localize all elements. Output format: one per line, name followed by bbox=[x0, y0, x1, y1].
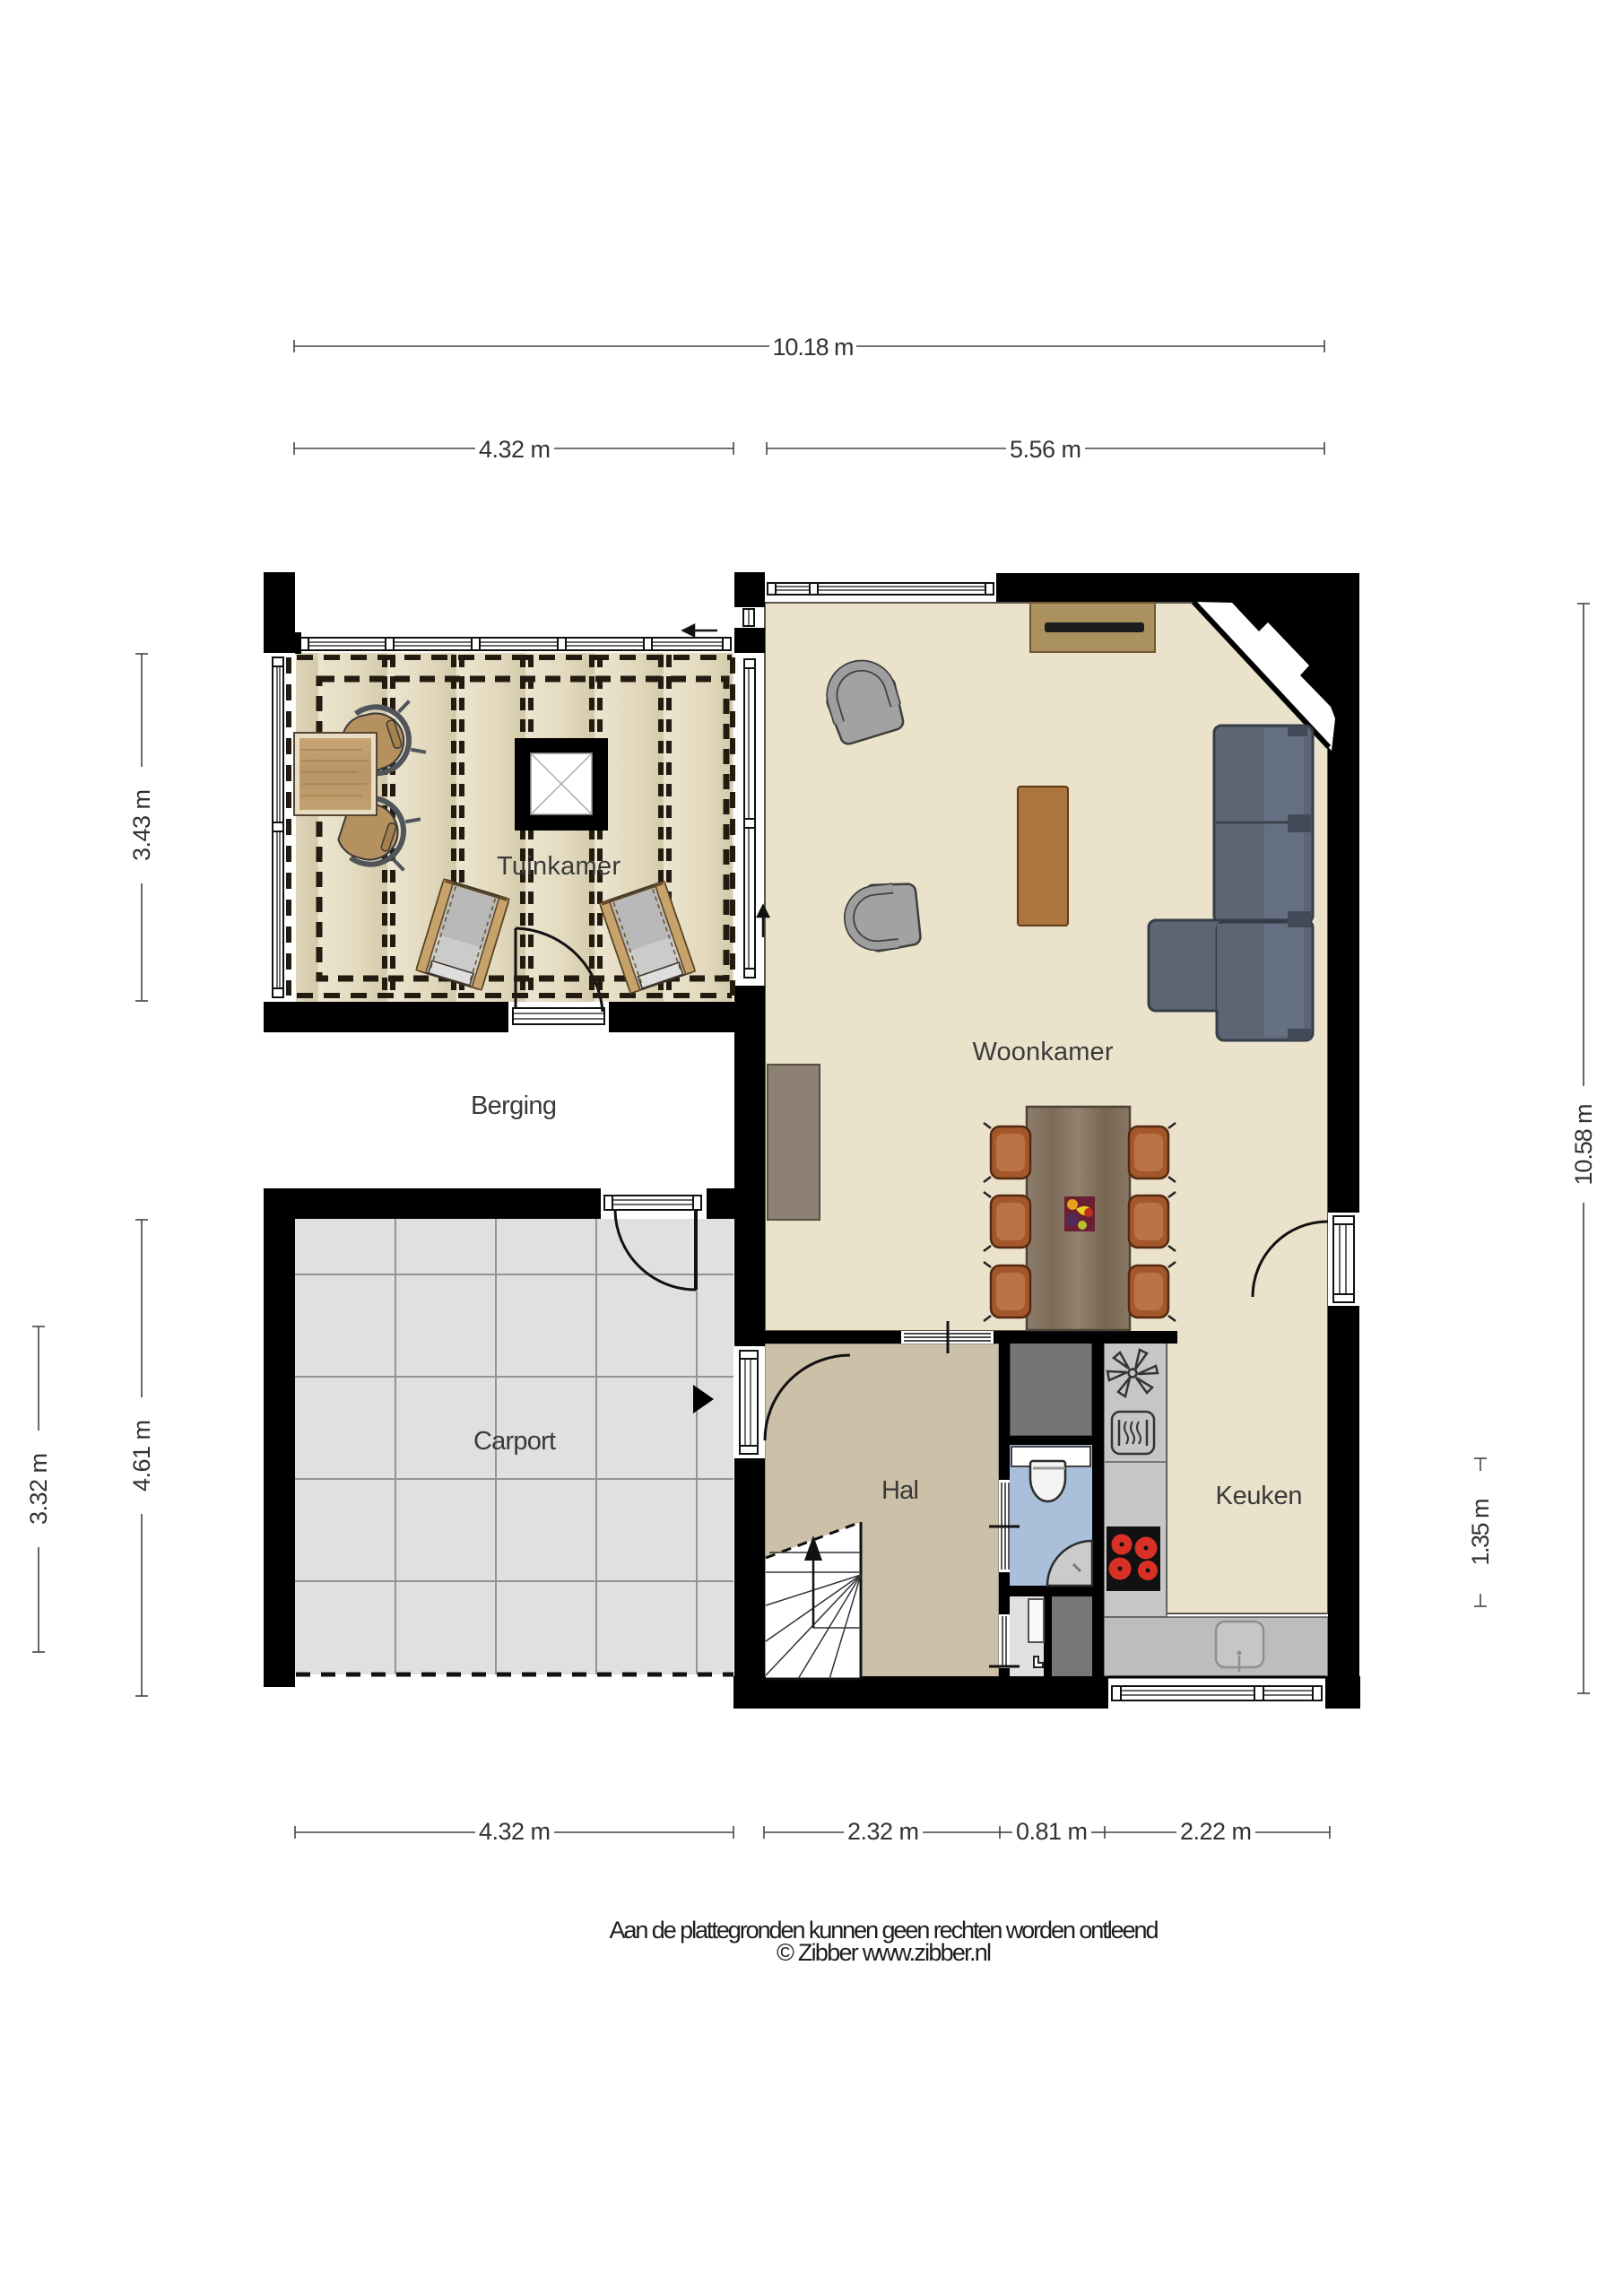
svg-text:4.61 m: 4.61 m bbox=[128, 1420, 155, 1492]
svg-text:4.32 m: 4.32 m bbox=[479, 436, 551, 463]
svg-text:4.32 m: 4.32 m bbox=[479, 1818, 551, 1845]
svg-text:0.81 m: 0.81 m bbox=[1016, 1818, 1088, 1845]
svg-text:10.58 m: 10.58 m bbox=[1570, 1104, 1597, 1186]
svg-text:2.22 m: 2.22 m bbox=[1180, 1818, 1252, 1845]
svg-text:3.43 m: 3.43 m bbox=[128, 789, 155, 861]
svg-text:10.18 m: 10.18 m bbox=[773, 334, 855, 361]
svg-text:Berging: Berging bbox=[471, 1091, 557, 1120]
svg-text:Keuken: Keuken bbox=[1216, 1482, 1303, 1510]
svg-text:3.32 m: 3.32 m bbox=[25, 1453, 52, 1525]
svg-text:Hal: Hal bbox=[881, 1476, 919, 1505]
svg-text:2.32 m: 2.32 m bbox=[847, 1818, 919, 1845]
svg-text:Carport: Carport bbox=[473, 1427, 556, 1456]
svg-text:1.35 m: 1.35 m bbox=[1467, 1499, 1494, 1566]
svg-text:5.56 m: 5.56 m bbox=[1010, 436, 1081, 463]
svg-text:Woonkamer: Woonkamer bbox=[973, 1038, 1114, 1066]
svg-text:© Zibber www.zibber.nl: © Zibber www.zibber.nl bbox=[777, 1939, 992, 1966]
svg-text:Tuinkamer: Tuinkamer bbox=[497, 852, 621, 881]
